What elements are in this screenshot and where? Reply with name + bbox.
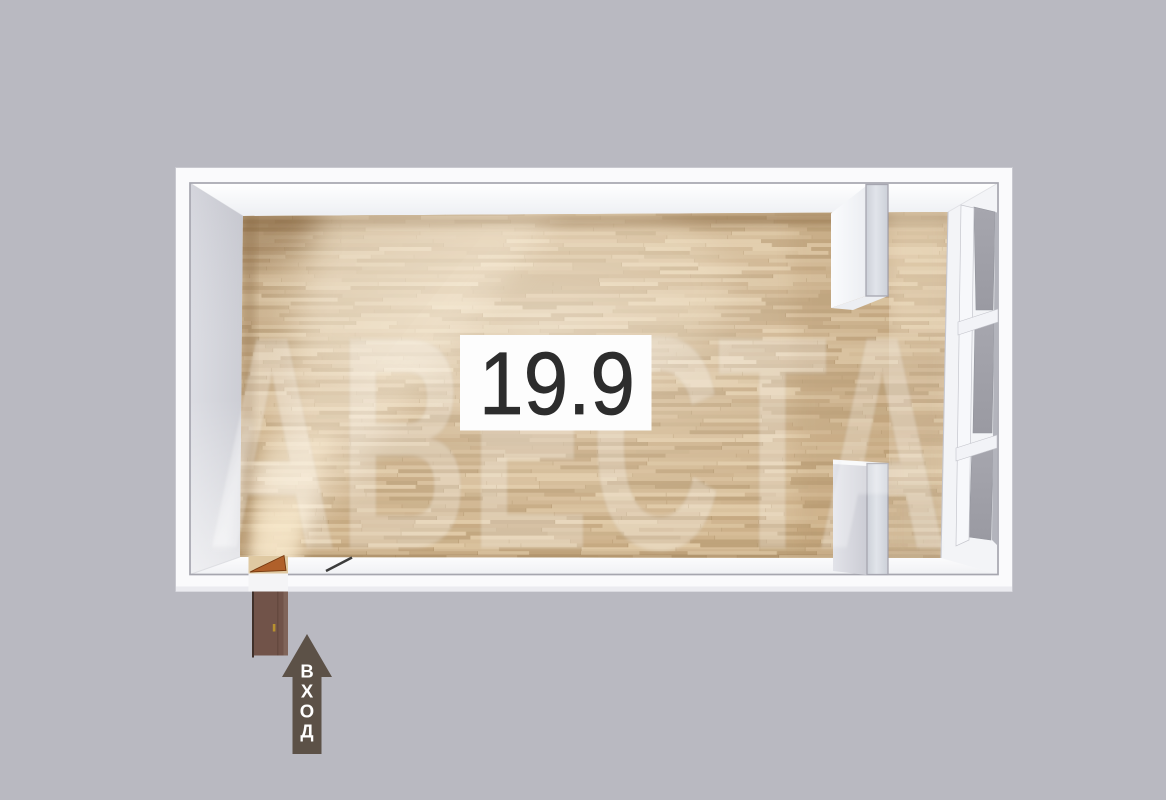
svg-text:Д: Д <box>300 721 313 742</box>
svg-text:Х: Х <box>301 681 314 702</box>
svg-text:АВЕСТА: АВЕСТА <box>206 274 947 612</box>
svg-text:В: В <box>300 661 313 682</box>
svg-text:О: О <box>300 701 314 722</box>
svg-text:19.9: 19.9 <box>479 333 635 433</box>
